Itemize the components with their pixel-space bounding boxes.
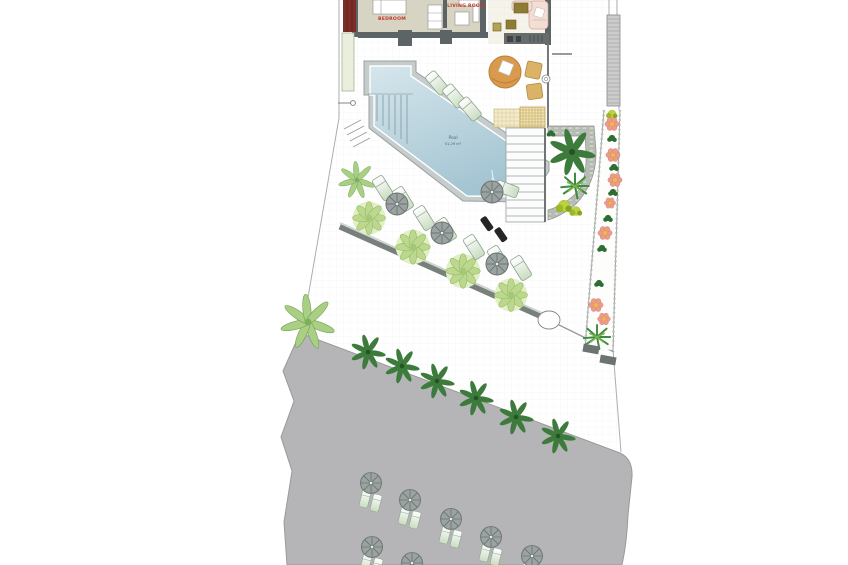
parasol-icon (486, 253, 508, 275)
bush-icon (353, 202, 386, 235)
checkered-mats (494, 107, 545, 127)
pool-area-label: 51,29 m² (445, 142, 462, 146)
wardrobe (428, 5, 442, 29)
maroon-wall (343, 0, 356, 32)
flower-icon (604, 198, 615, 208)
garden-stairs (506, 128, 545, 222)
flower-icon (606, 149, 620, 162)
hedge-planter (342, 33, 354, 91)
living-room-label: LIVING ROOM (447, 3, 485, 9)
flower-icon (598, 313, 611, 325)
bush-icon (495, 279, 528, 312)
bush-icon (396, 230, 431, 265)
pool-name-label: Pool (448, 135, 457, 141)
flower-icon (589, 299, 603, 312)
parasol-icon (386, 193, 408, 215)
flower-icon (605, 118, 619, 131)
bedroom-label: BEDROOM (378, 16, 406, 22)
parasol-icon (481, 181, 503, 203)
parasol-icon (431, 222, 453, 244)
site-plan-page: BEDROOM LIVING ROOM (0, 0, 848, 565)
street-stairs (607, 15, 620, 106)
bbq-counter (504, 33, 549, 44)
hanging-chair (489, 56, 521, 88)
bed (373, 0, 406, 14)
flower-icon (608, 174, 622, 187)
garden-dome (538, 311, 560, 329)
flower-icon (598, 227, 612, 240)
site-plan-svg: BEDROOM LIVING ROOM (0, 0, 848, 565)
side-table (542, 75, 550, 83)
